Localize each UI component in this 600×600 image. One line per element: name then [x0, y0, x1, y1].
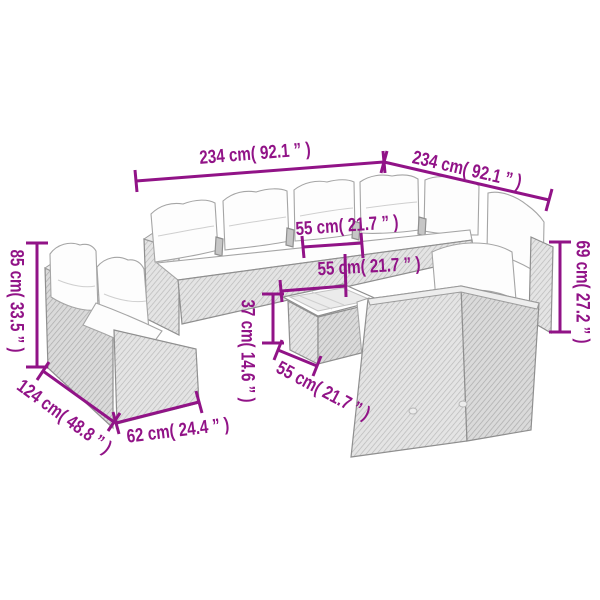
front-chair	[351, 286, 539, 457]
back-cushion-2	[223, 189, 289, 250]
dim-label-table-height: 37 cm( 14.6 ” )	[238, 299, 257, 402]
frame-peg	[215, 237, 223, 256]
chair-detail-dot	[459, 401, 467, 407]
dim-label-right-height: 69 cm( 27.2 ” )	[573, 240, 592, 343]
dimension-diagram: 234 cm( 92.1 ” ) 234 cm( 92.1 ” ) 69 cm(…	[0, 0, 600, 600]
frame-peg	[418, 217, 426, 236]
dim-label-seat-width-b: 55 cm( 21.7 ” )	[317, 255, 421, 279]
left-sofa-front-face	[114, 330, 199, 424]
frame-peg	[286, 228, 294, 247]
left-sofa-cushion-1	[50, 243, 98, 310]
chair-back-left-face	[351, 286, 467, 457]
chair-back-right-face	[461, 286, 539, 441]
back-cushion-5	[424, 177, 479, 235]
furniture-drawing	[0, 0, 600, 600]
dim-label-left-height: 85 cm( 33.5 ” )	[7, 249, 26, 352]
chair-detail-dot	[409, 408, 417, 414]
